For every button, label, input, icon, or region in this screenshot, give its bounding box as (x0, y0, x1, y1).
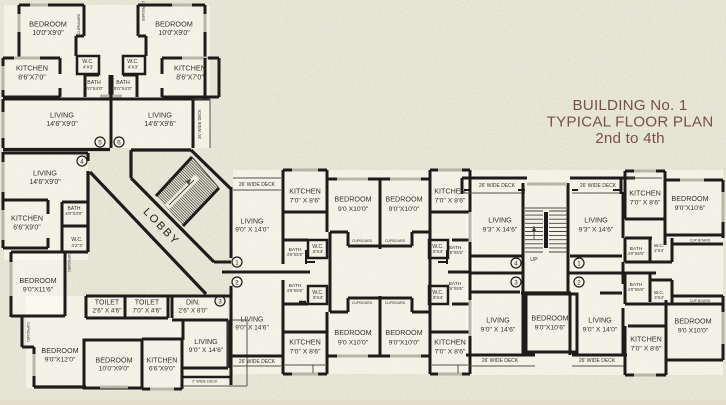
svg-text:LIVING: LIVING (148, 111, 172, 120)
svg-text:LIVING: LIVING (584, 216, 608, 225)
svg-text:BEDROOM: BEDROOM (385, 195, 422, 204)
svg-text:3'X4': 3'X4' (654, 295, 664, 300)
svg-text:CUPBOARD: CUPBOARD (352, 239, 373, 243)
svg-text:W.C.: W.C. (82, 59, 93, 65)
svg-text:3'X4': 3'X4' (313, 249, 324, 255)
svg-text:9'0" X 14'0": 9'0" X 14'0" (235, 227, 269, 234)
svg-text:CUPBOARD: CUPBOARD (352, 301, 373, 305)
svg-text:LIVING: LIVING (588, 316, 612, 325)
svg-text:7'0" X 8'6": 7'0" X 8'6" (290, 349, 321, 356)
svg-text:7'0" X 8'6": 7'0" X 8'6" (630, 200, 661, 207)
svg-text:9'0"X12'0": 9'0"X12'0" (45, 357, 76, 364)
svg-text:BEDROOM: BEDROOM (531, 314, 568, 323)
svg-text:9'0" X 14'6": 9'0" X 14'6" (481, 327, 516, 334)
svg-text:9'0 X10'0": 9'0 X10'0" (678, 328, 709, 335)
svg-text:UP: UP (530, 257, 538, 263)
svg-text:9'0 X10'0": 9'0 X10'0" (338, 206, 369, 213)
svg-text:26' WIDE DECK: 26' WIDE DECK (239, 182, 276, 188)
svg-text:W.C.: W.C. (127, 59, 138, 65)
svg-text:CUPBOARD: CUPBOARD (67, 252, 71, 272)
svg-text:7'0" X 8'6": 7'0" X 8'6" (435, 198, 466, 205)
svg-text:LIVING: LIVING (33, 169, 57, 178)
svg-text:TOILET: TOILET (135, 300, 160, 307)
svg-text:KITCHEN: KITCHEN (289, 338, 321, 347)
svg-text:26' WIDE DECK: 26' WIDE DECK (239, 359, 276, 365)
svg-text:9'3" X 14'6": 9'3" X 14'6" (579, 227, 614, 234)
svg-text:CUPBOARD: CUPBOARD (385, 239, 406, 243)
svg-text:CUPBOARD: CUPBOARD (385, 301, 406, 305)
svg-text:2nd to 4th: 2nd to 4th (595, 130, 665, 147)
svg-text:4'0"X3'0": 4'0"X3'0" (65, 211, 83, 216)
svg-text:KITCHEN: KITCHEN (11, 214, 43, 223)
svg-text:BEDROOM: BEDROOM (155, 20, 193, 29)
svg-text:10'0"X9'0": 10'0"X9'0" (32, 30, 64, 37)
svg-text:6'6"X9'0": 6'6"X9'0" (13, 225, 41, 232)
svg-text:BEDROOM: BEDROOM (29, 20, 67, 29)
svg-text:4'0"X5'6": 4'0"X5'6" (628, 251, 645, 256)
svg-text:3: 3 (218, 298, 222, 305)
svg-text:5'0"X4'0": 5'0"X4'0" (85, 86, 104, 91)
svg-text:BEDROOM: BEDROOM (19, 276, 56, 285)
svg-text:8'6"X7'0": 8'6"X7'0" (18, 75, 46, 82)
svg-text:14'6"X9'0": 14'6"X9'0" (29, 179, 61, 186)
svg-text:2'6" X 4'6": 2'6" X 4'6" (92, 308, 121, 315)
svg-text:BEDROOM: BEDROOM (334, 195, 371, 204)
svg-text:CUP BOARD: CUP BOARD (690, 299, 711, 303)
svg-text:LIVING: LIVING (488, 216, 512, 225)
svg-text:BEDROOM: BEDROOM (674, 317, 711, 326)
svg-text:DIN.: DIN. (186, 300, 200, 307)
svg-text:BEDROOM: BEDROOM (671, 194, 708, 203)
svg-text:KITCHEN: KITCHEN (630, 335, 662, 344)
svg-text:CUPBOARD: CUPBOARD (77, 13, 81, 34)
svg-text:3: 3 (514, 279, 518, 286)
svg-text:4'2"3': 4'2"3' (71, 243, 82, 248)
svg-text:KITCHEN: KITCHEN (147, 358, 178, 365)
svg-text:9'0 X10'0": 9'0 X10'0" (338, 340, 369, 347)
svg-text:26' WIDE DECK: 26' WIDE DECK (580, 183, 617, 189)
svg-text:BUILDING No. 1: BUILDING No. 1 (572, 97, 687, 114)
svg-text:4'6"X5'6": 4'6"X5'6" (447, 250, 464, 255)
svg-text:4'X3': 4'X3' (83, 65, 94, 71)
svg-text:BEDROOM: BEDROOM (41, 346, 78, 355)
svg-text:26' WIDE DECK: 26' WIDE DECK (482, 358, 519, 364)
svg-text:KITCHEN: KITCHEN (434, 338, 466, 347)
svg-text:5: 5 (98, 139, 102, 146)
svg-text:9'0"X10'6": 9'0"X10'6" (675, 205, 706, 212)
svg-text:KITCHEN: KITCHEN (16, 64, 48, 73)
svg-text:9'0"X10'6": 9'0"X10'6" (535, 325, 566, 332)
svg-text:LOBBY: LOBBY (141, 206, 182, 248)
svg-text:KITCHEN: KITCHEN (174, 64, 206, 73)
svg-text:5'0"X4'0": 5'0"X4'0" (114, 86, 133, 91)
svg-text:9'0"X10'0": 9'0"X10'0" (389, 206, 420, 213)
svg-text:LIVING: LIVING (194, 337, 218, 346)
svg-text:2'X4': 2'X4' (654, 248, 664, 253)
svg-text:7'0" X 8'6": 7'0" X 8'6" (631, 346, 662, 353)
svg-text:9'3" X 14'6": 9'3" X 14'6" (483, 227, 518, 234)
svg-text:9'0"X11'6": 9'0"X11'6" (23, 287, 54, 294)
svg-text:14'6"X9'0": 14'6"X9'0" (46, 121, 78, 128)
svg-text:BEDROOM: BEDROOM (385, 328, 422, 337)
svg-text:7'0" X 4'6": 7'0" X 4'6" (132, 308, 161, 315)
svg-text:9'0"X10'0": 9'0"X10'0" (389, 340, 420, 347)
svg-text:BEDROOM: BEDROOM (95, 356, 132, 365)
svg-text:2: 2 (577, 279, 581, 286)
svg-text:4'0"X5'6": 4'0"X5'6" (628, 287, 645, 292)
svg-text:3'X4': 3'X4' (433, 295, 444, 301)
svg-text:26' WIDE DECK: 26' WIDE DECK (479, 183, 516, 189)
svg-text:8'6"X7'0": 8'6"X7'0" (176, 75, 204, 82)
svg-text:9'0" X 14'6": 9'0" X 14'6" (189, 347, 224, 354)
svg-text:6'6"X9'0": 6'6"X9'0" (149, 366, 176, 373)
svg-text:7'0" X 8'6": 7'0" X 8'6" (290, 198, 321, 205)
svg-text:TOILET: TOILET (95, 300, 120, 307)
svg-text:4: 4 (80, 158, 84, 165)
svg-text:9'0" X 14'6": 9'0" X 14'6" (235, 325, 269, 332)
svg-text:LIVING: LIVING (486, 316, 510, 325)
svg-text:TYPICAL FLOOR PLAN: TYPICAL FLOOR PLAN (547, 114, 714, 131)
svg-text:6: 6 (117, 139, 121, 146)
svg-text:2: 2 (235, 279, 239, 286)
svg-text:14'6"X9'6": 14'6"X9'6" (144, 121, 176, 128)
svg-text:4'6"X5'6": 4'6"X5'6" (447, 286, 464, 291)
svg-text:LIVING: LIVING (241, 219, 264, 226)
svg-text:CUPBOARD: CUPBOARD (141, 1, 145, 22)
svg-text:7'0" X 8'6": 7'0" X 8'6" (435, 349, 466, 356)
svg-text:3'X4': 3'X4' (313, 295, 324, 301)
svg-text:1: 1 (577, 260, 581, 267)
svg-text:2' WIDE DECK: 2' WIDE DECK (192, 380, 218, 384)
svg-text:9'0" X 14'0": 9'0" X 14'0" (583, 327, 618, 334)
svg-text:4'X3': 4'X3' (128, 65, 139, 71)
svg-text:26' WIDE DECK: 26' WIDE DECK (579, 358, 616, 364)
svg-text:CUP BOARD: CUP BOARD (690, 239, 711, 243)
svg-text:26' WIDE DECK: 26' WIDE DECK (197, 109, 202, 139)
svg-text:4'6"X5'6": 4'6"X5'6" (287, 252, 304, 257)
svg-text:3'X4': 3'X4' (433, 249, 444, 255)
svg-text:10'0"X9'0": 10'0"X9'0" (99, 366, 130, 373)
svg-text:BEDROOM: BEDROOM (334, 328, 371, 337)
svg-text:4: 4 (514, 260, 518, 267)
svg-text:CUPBOARD: CUPBOARD (26, 322, 30, 342)
svg-text:1: 1 (235, 259, 239, 266)
svg-text:KITCHEN: KITCHEN (629, 189, 661, 198)
svg-text:10'0"X9'0": 10'0"X9'0" (158, 30, 190, 37)
svg-text:4'6"X5'6": 4'6"X5'6" (287, 288, 304, 293)
svg-text:KITCHEN: KITCHEN (289, 187, 321, 196)
svg-text:LIVING: LIVING (50, 111, 74, 120)
svg-text:LIVING: LIVING (241, 317, 264, 324)
svg-text:2'6" X 8'0": 2'6" X 8'0" (178, 308, 207, 315)
